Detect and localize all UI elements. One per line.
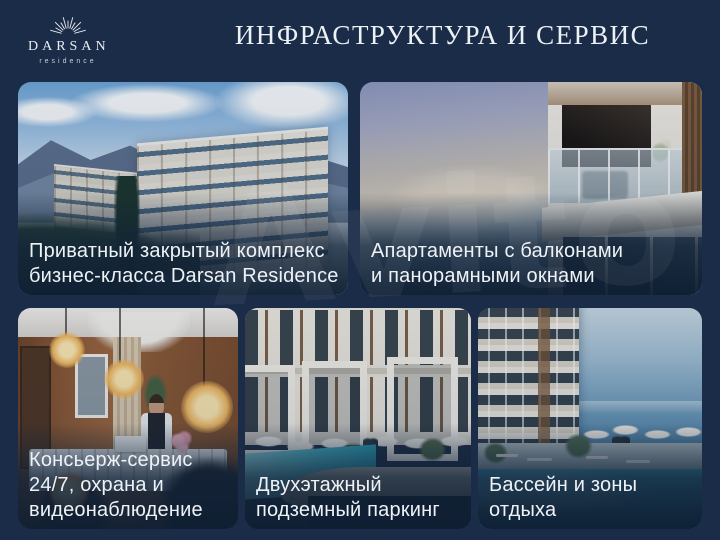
caption-pool-zones: Бассейн и зоны отдыха xyxy=(489,473,694,523)
card-pool-zones: Бассейн и зоны отдыха xyxy=(478,308,702,529)
caption-concierge: Консьерж-сервис 24/7, охрана и видеонабл… xyxy=(29,448,230,523)
slide-title: ИНФРАСТРУКТУРА И СЕРВИС xyxy=(185,20,700,51)
card-private-complex: Приватный закрытый комплекс бизнес-класс… xyxy=(18,82,348,295)
card-parking: Двухэтажный подземный паркинг xyxy=(245,308,471,529)
caption-apartments-balconies: Апартаменты с балконами и панорамными ок… xyxy=(371,239,694,289)
sunburst-icon xyxy=(48,8,88,38)
card-apartments-balconies: Апартаменты с балконами и панорамными ок… xyxy=(360,82,702,295)
caption-parking: Двухэтажный подземный паркинг xyxy=(256,473,463,523)
brand-name: DARSAN xyxy=(28,39,108,55)
brand-logo: DARSAN residence xyxy=(28,8,108,65)
card-concierge: Консьерж-сервис 24/7, охрана и видеонабл… xyxy=(18,308,238,529)
caption-private-complex: Приватный закрытый комплекс бизнес-класс… xyxy=(29,239,340,289)
slide: DARSAN residence ИНФРАСТРУКТУРА И СЕРВИС… xyxy=(0,0,720,540)
brand-tagline: residence xyxy=(28,58,108,65)
